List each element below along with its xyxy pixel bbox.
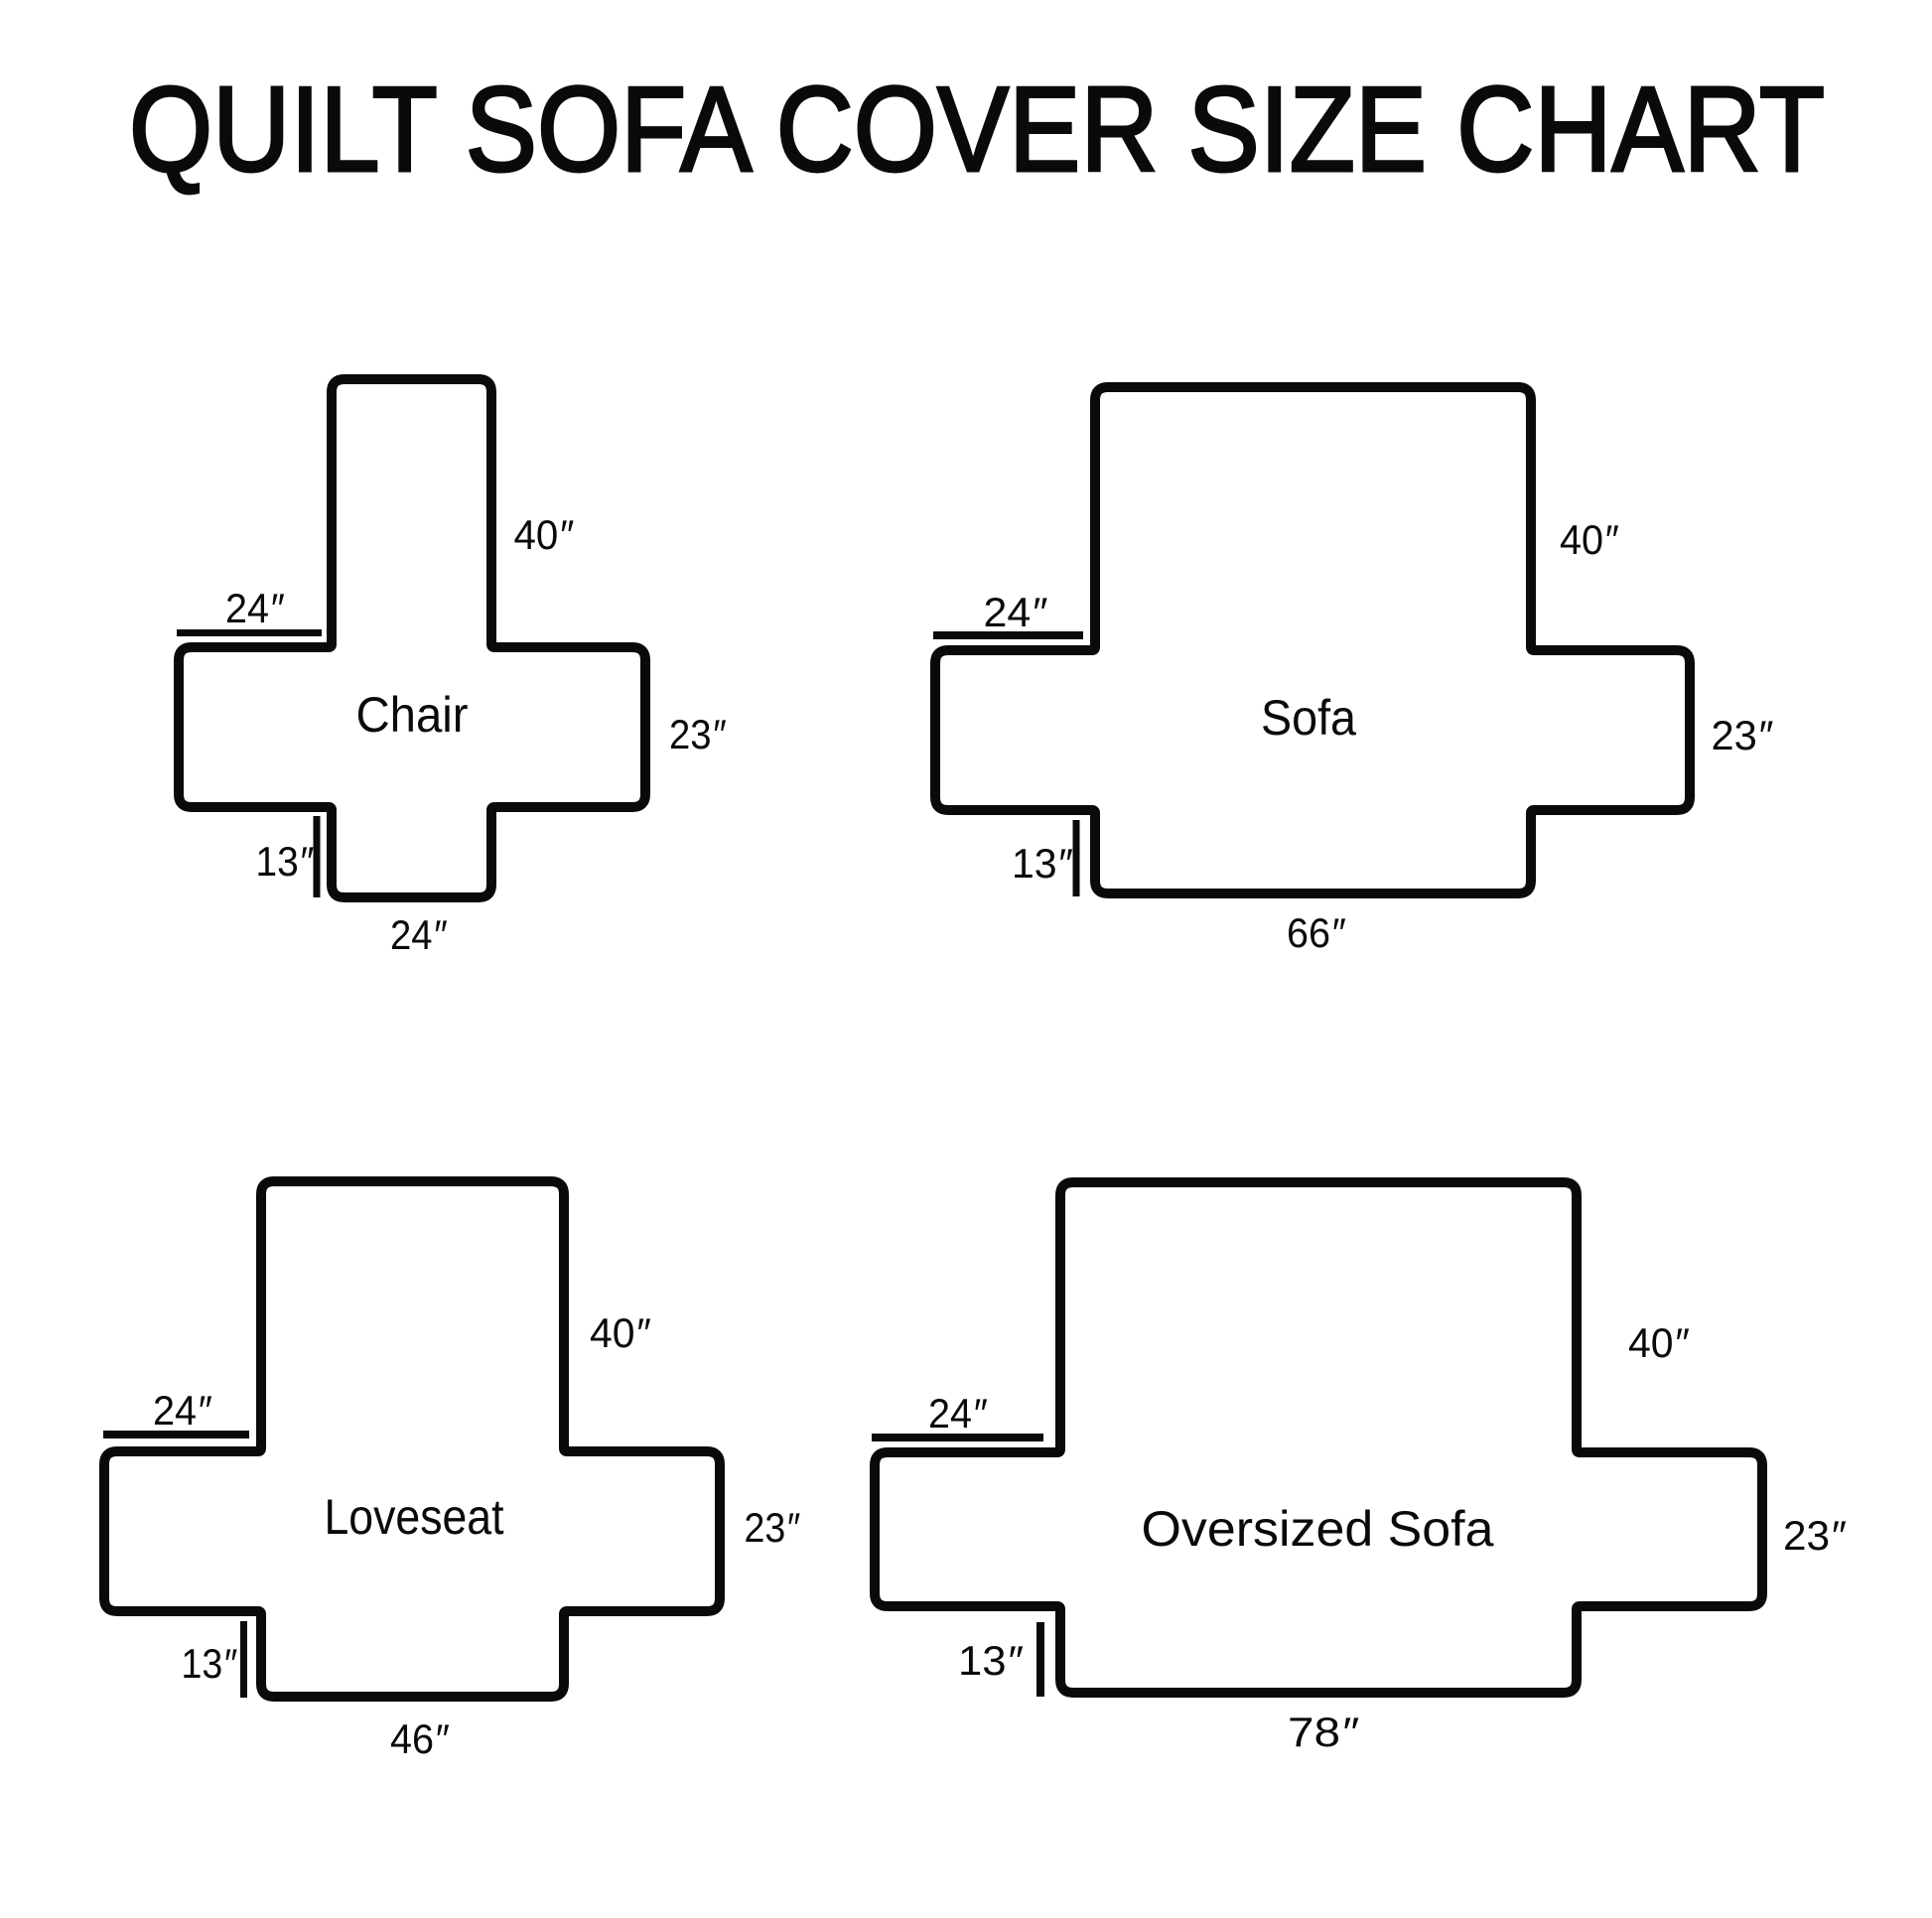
svg-text:Loveseat: Loveseat: [325, 1489, 504, 1545]
svg-text:13″: 13″: [958, 1637, 1024, 1684]
svg-text:40″: 40″: [1628, 1319, 1690, 1366]
svg-text:QUILT SOFA COVER SIZE CHART: QUILT SOFA COVER SIZE CHART: [129, 62, 1825, 197]
svg-text:13″: 13″: [182, 1640, 238, 1687]
svg-text:40″: 40″: [514, 511, 575, 558]
svg-text:23″: 23″: [1783, 1512, 1847, 1559]
svg-text:13″: 13″: [256, 838, 315, 885]
svg-text:40″: 40″: [1560, 516, 1619, 563]
svg-text:24″: 24″: [153, 1387, 212, 1434]
svg-text:24″: 24″: [984, 589, 1048, 635]
svg-text:40″: 40″: [590, 1309, 651, 1356]
svg-text:66″: 66″: [1287, 909, 1346, 956]
svg-text:24″: 24″: [928, 1390, 988, 1437]
svg-text:Oversized Sofa: Oversized Sofa: [1142, 1501, 1494, 1557]
svg-text:Sofa: Sofa: [1261, 690, 1356, 746]
svg-text:23″: 23″: [1712, 712, 1774, 758]
svg-text:24″: 24″: [390, 911, 448, 958]
svg-text:46″: 46″: [390, 1715, 450, 1762]
svg-text:23″: 23″: [745, 1504, 801, 1551]
svg-text:23″: 23″: [669, 711, 727, 757]
svg-text:Chair: Chair: [356, 687, 469, 743]
svg-text:24″: 24″: [225, 585, 285, 631]
svg-text:13″: 13″: [1012, 840, 1073, 887]
svg-text:78″: 78″: [1288, 1709, 1359, 1755]
